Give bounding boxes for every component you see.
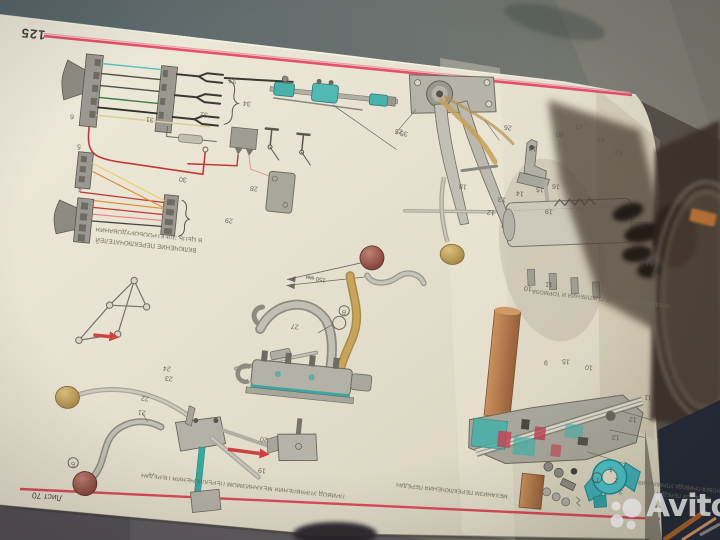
- part-number-label: 15: [562, 357, 570, 365]
- avito-watermark-text: Avito: [646, 488, 720, 524]
- part-number-label: 13: [498, 195, 506, 203]
- part-number-label: 12: [629, 415, 637, 423]
- part-number-label: 6: [70, 112, 75, 119]
- photo-of-technical-album-page: 125 Лист 70 ВКЛЮЧЕНИЕ ПЕРЕКЛЮЧАТЕЛЕЙ В Ц…: [0, 0, 720, 540]
- part-number-label: 22: [141, 394, 149, 402]
- part-number-label: 33: [229, 76, 237, 84]
- part-number-label: 26: [504, 123, 512, 131]
- part-number-label: 13: [612, 433, 620, 441]
- part-number-label: 4: [78, 185, 83, 192]
- part-number-label: 11: [545, 280, 553, 288]
- part-number-label: 21: [138, 408, 146, 416]
- part-number-label: 18: [459, 182, 467, 190]
- part-number-label: 24: [163, 364, 171, 372]
- avito-logo-icon: [608, 498, 644, 532]
- part-number-label: 20: [260, 435, 268, 443]
- part-number-label: 2: [614, 476, 619, 483]
- part-number-label: 5: [77, 142, 82, 149]
- part-number-label: 9: [544, 358, 549, 365]
- photo-background-art: [0, 0, 720, 540]
- part-number-label: 40: [556, 130, 564, 138]
- avito-watermark: Avito: [608, 490, 720, 538]
- part-number-label: 10: [524, 284, 532, 292]
- part-number-label: 12: [487, 208, 495, 216]
- part-number-label: 31: [146, 115, 154, 123]
- part-number-label: 11: [644, 393, 652, 401]
- page-number: 125: [20, 25, 46, 43]
- part-number-label: 1: [609, 465, 614, 472]
- part-number-label: 16: [552, 182, 560, 190]
- part-number-label: 28: [250, 184, 258, 192]
- part-number-label: 43: [615, 148, 623, 156]
- part-number-label: 19: [258, 466, 266, 474]
- part-number-label: 10: [585, 363, 593, 371]
- part-number-label: 44: [646, 259, 654, 267]
- part-number-label: 23: [165, 374, 173, 382]
- part-number-label: 34: [243, 99, 251, 107]
- part-number-label: 27: [291, 322, 299, 330]
- part-number-label: 32: [200, 110, 208, 118]
- part-number-label: 19: [545, 207, 553, 215]
- part-number-label: 14: [516, 189, 524, 197]
- part-number-label: 15: [536, 185, 544, 193]
- part-number-label: 41: [575, 122, 583, 130]
- part-number-label: 29: [225, 216, 233, 224]
- part-number-label: 45: [651, 271, 659, 279]
- part-number-label: 30: [179, 175, 187, 183]
- part-number-label: 25: [395, 127, 403, 135]
- part-number-label: 42: [597, 135, 605, 143]
- part-number-label: 17: [529, 144, 537, 152]
